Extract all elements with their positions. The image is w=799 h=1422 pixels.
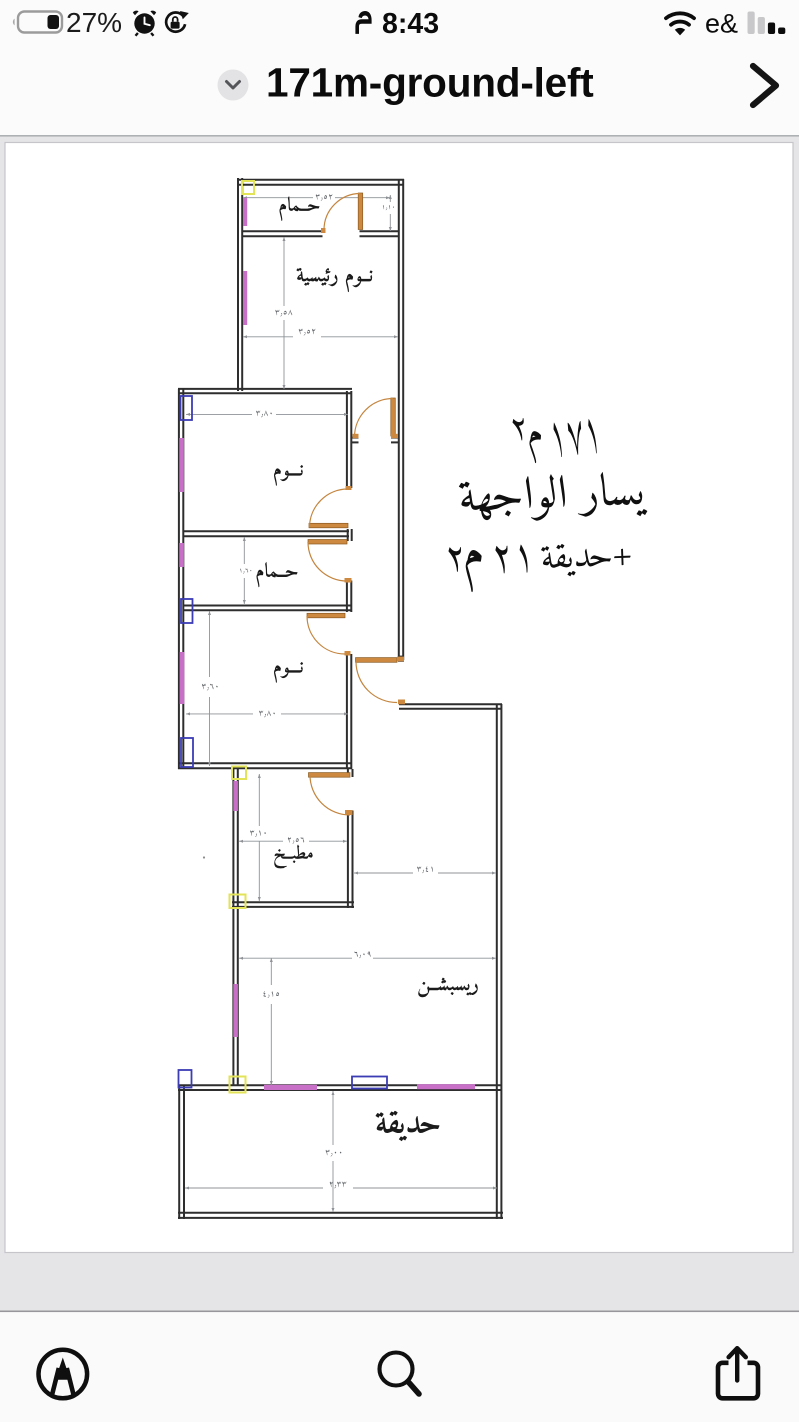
svg-text:e&: e& bbox=[705, 9, 738, 39]
svg-text:8:43: 8:43 bbox=[382, 8, 439, 40]
svg-text:171m-ground-left: 171m-ground-left bbox=[266, 60, 594, 106]
svg-text:27%: 27% bbox=[66, 7, 122, 38]
